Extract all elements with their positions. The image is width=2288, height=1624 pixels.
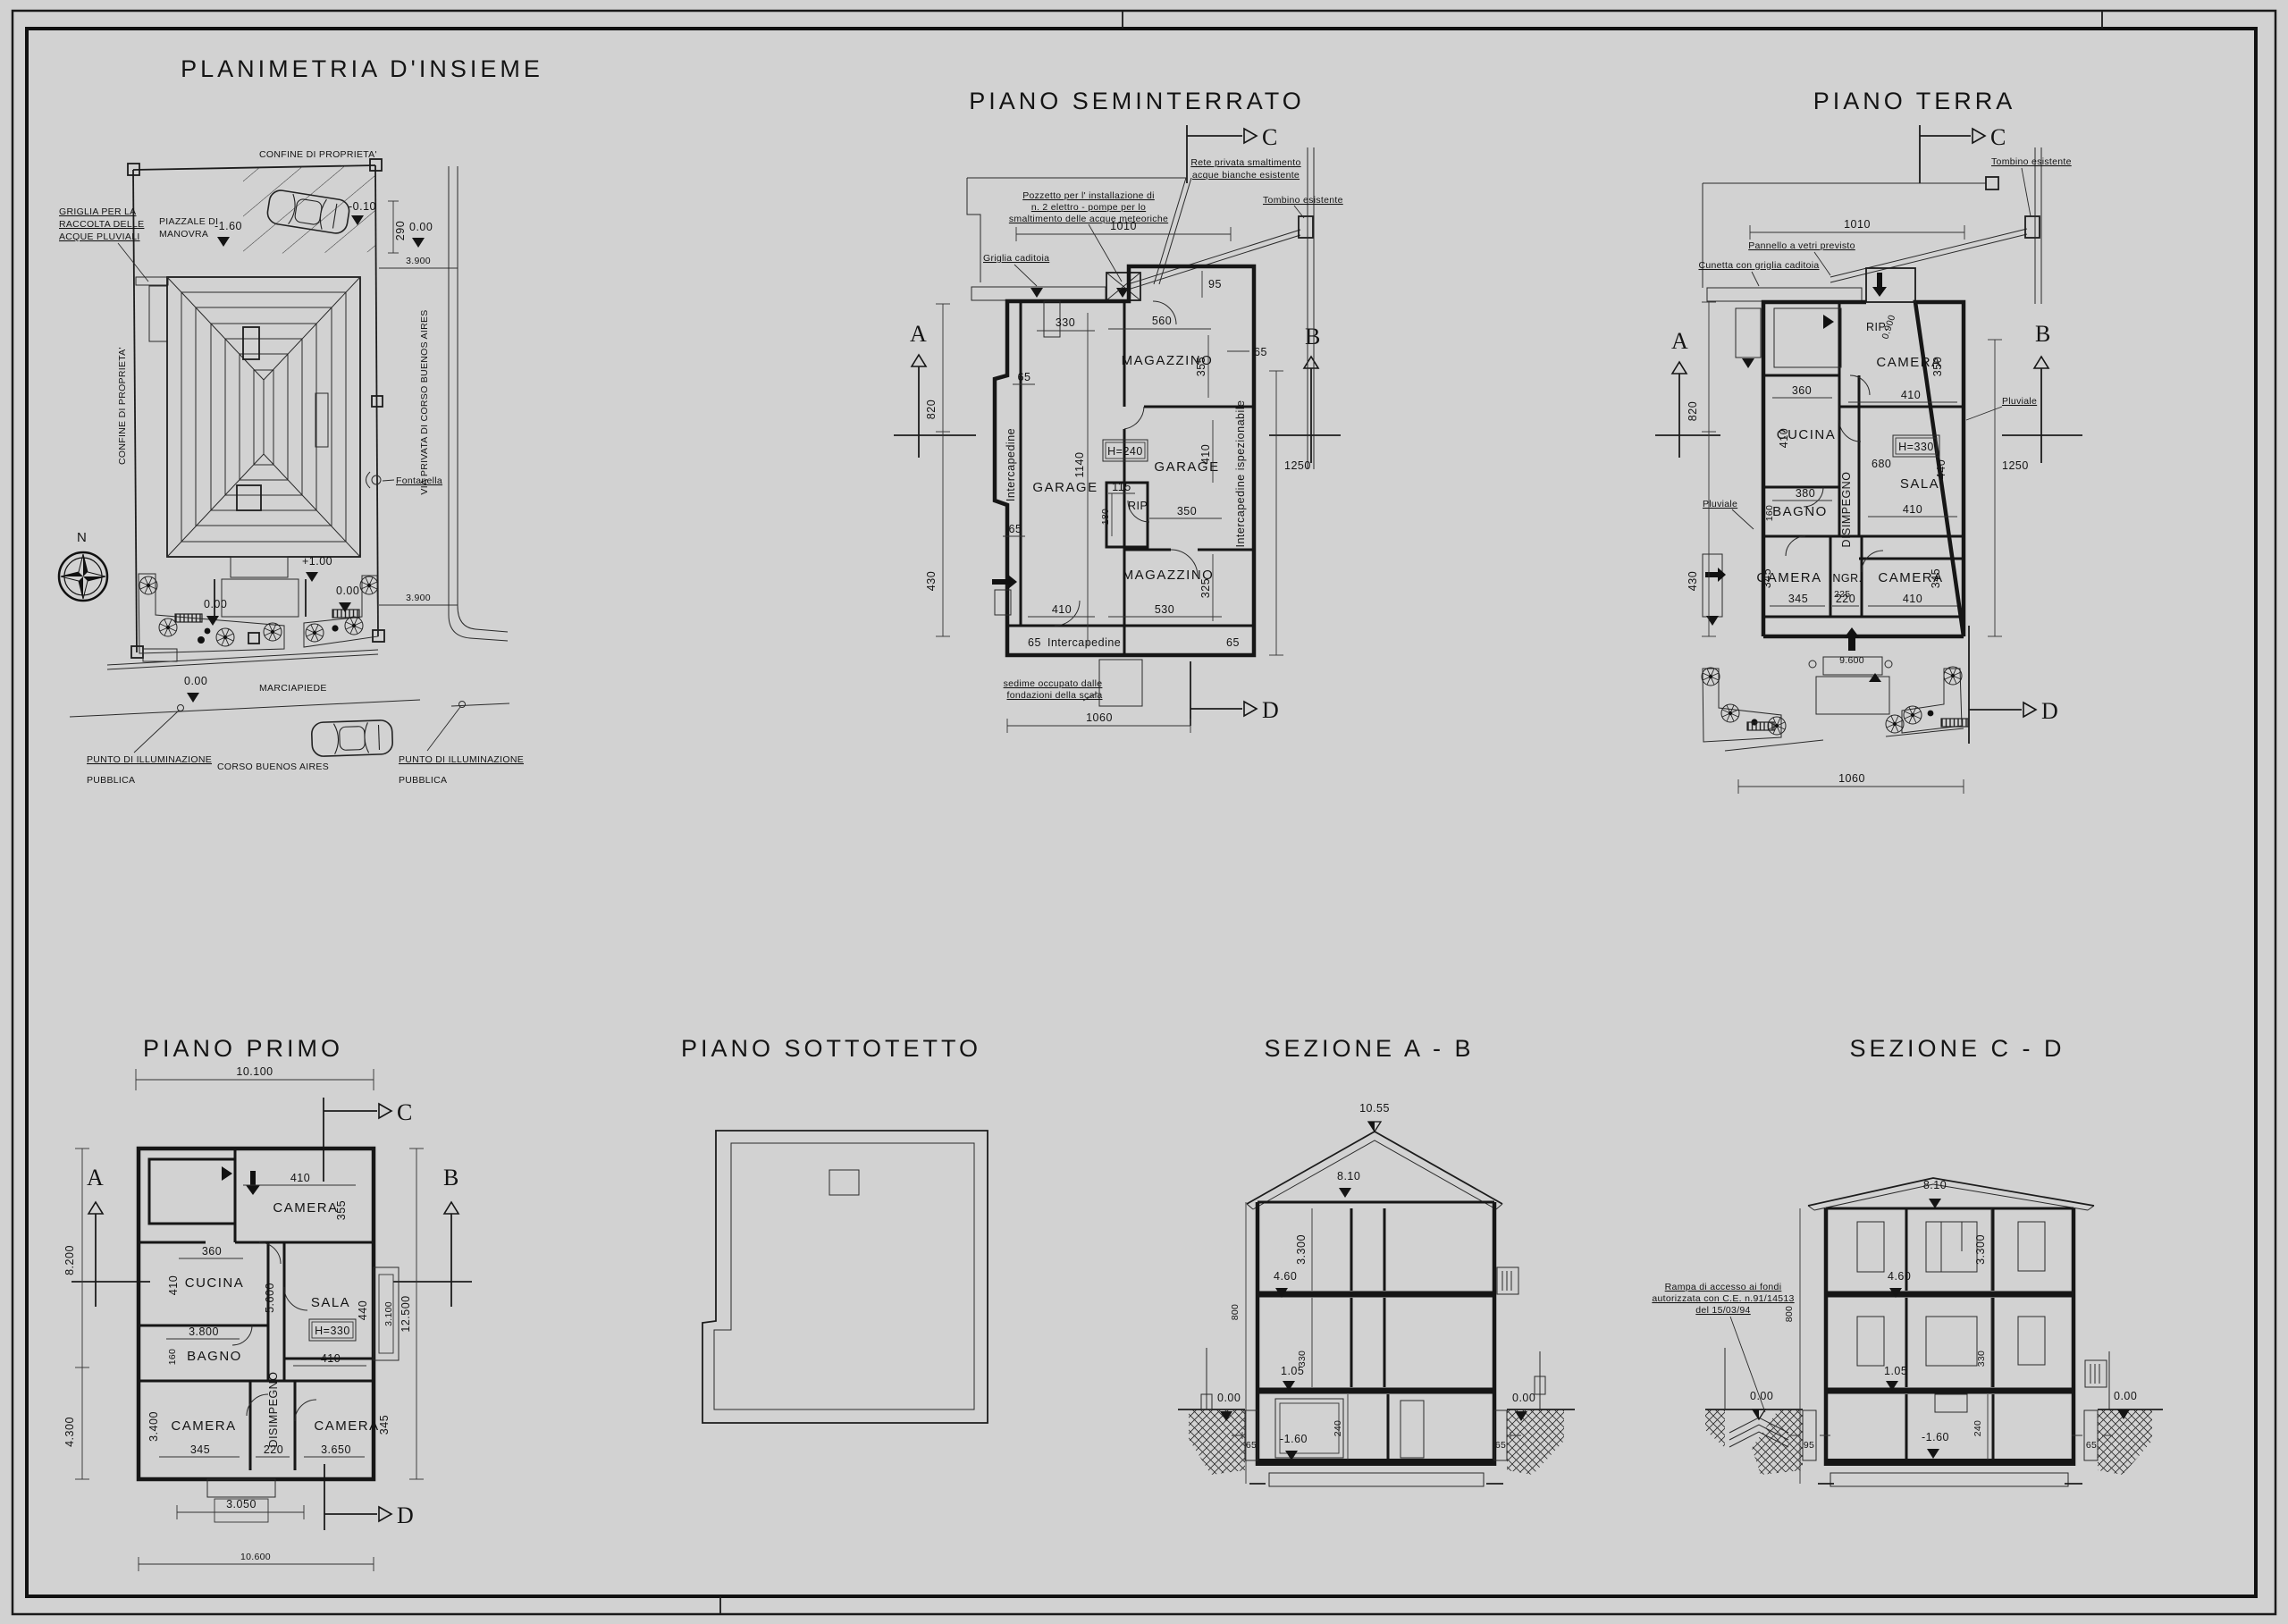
- ground-gardens: [1702, 657, 1968, 751]
- svg-text:410: 410: [1903, 503, 1922, 516]
- ground-title: PIANO TERRA: [1813, 88, 2016, 114]
- pluviale-left: Pluviale: [1703, 499, 1737, 509]
- svg-text:D: D: [1262, 697, 1279, 723]
- svg-text:1140: 1140: [1073, 452, 1086, 478]
- cd-level-810: 8.10: [1923, 1179, 1947, 1191]
- cunetta-note: Cunetta con griglia caditoia: [1698, 260, 1819, 271]
- fontanella-label: Fontanella: [396, 475, 442, 486]
- pozzetto-note-1: Pozzetto per l' installazione di: [1022, 190, 1155, 201]
- svg-text:GRIGLIA PER LA: GRIGLIA PER LA: [59, 206, 136, 217]
- svg-text:H=330: H=330: [315, 1325, 350, 1337]
- sidewalk-street: [70, 650, 509, 757]
- intercapedine-left: Intercapedine: [1005, 428, 1017, 501]
- first-room-bagno: BAGNO: [187, 1349, 242, 1364]
- ground-ext-stair-left: [1703, 308, 1761, 626]
- svg-text:C: C: [1990, 124, 2006, 150]
- ground-court: [1703, 147, 2041, 304]
- svg-text:430: 430: [1687, 571, 1699, 591]
- svg-text:65: 65: [1009, 523, 1022, 535]
- via-privata-label: VIA PRIVATA DI CORSO BUENOS AIRES: [419, 309, 430, 494]
- svg-text:C: C: [397, 1099, 412, 1125]
- svg-text:95: 95: [1208, 278, 1222, 290]
- level-zero-tr: 0.00: [409, 221, 433, 233]
- sedime-note: sedime occupato dalle fondazioni della s…: [1004, 660, 1142, 706]
- svg-text:10.100: 10.100: [236, 1065, 273, 1078]
- svg-text:65: 65: [1246, 1440, 1257, 1451]
- intercapedine-bottom-65: 65: [1028, 636, 1041, 649]
- svg-text:115: 115: [1112, 481, 1131, 493]
- svg-text:680: 680: [1872, 458, 1891, 470]
- svg-text:350: 350: [1931, 357, 1944, 376]
- svg-text:H=240: H=240: [1107, 445, 1143, 458]
- svg-text:C: C: [1262, 124, 1277, 150]
- svg-text:240: 240: [1973, 1420, 1983, 1436]
- panel-ground-floor: PIANO TERRA C B A D Tombino esistente 10…: [1655, 88, 2082, 794]
- ground-dim-0900: 0.900: [1880, 314, 1897, 341]
- svg-text:800: 800: [1230, 1304, 1241, 1320]
- attic-outline: [702, 1131, 988, 1423]
- ground-room-sala: SALA: [1900, 476, 1939, 492]
- svg-text:12.500: 12.500: [400, 1295, 412, 1332]
- pluviale-right: Pluviale: [2002, 396, 2037, 407]
- rete-note-2: acque bianche esistente: [1192, 170, 1300, 181]
- rete-note-1: Rete privata smaltimento: [1190, 157, 1300, 168]
- punto-ill-left-1: PUNTO DI ILLUMINAZIONE: [87, 754, 212, 765]
- svg-text:355: 355: [335, 1200, 348, 1220]
- tombino-note: Tombino esistente: [1263, 195, 1343, 206]
- svg-text:410: 410: [1903, 593, 1922, 605]
- svg-text:440: 440: [1935, 459, 1947, 479]
- svg-text:10.600: 10.600: [240, 1552, 271, 1562]
- svg-text:220: 220: [264, 1443, 283, 1456]
- ab-level-1055: 10.55: [1359, 1102, 1390, 1115]
- svg-text:180: 180: [1100, 509, 1111, 525]
- svg-text:A: A: [87, 1165, 104, 1191]
- svg-text:410: 410: [290, 1172, 310, 1184]
- svg-text:fondazioni della scala: fondazioni della scala: [1006, 690, 1102, 701]
- svg-text:240: 240: [1333, 1420, 1343, 1436]
- level-marker: [187, 693, 199, 703]
- svg-text:325: 325: [1199, 578, 1212, 598]
- svg-text:430: 430: [925, 571, 938, 591]
- svg-text:3.900: 3.900: [406, 593, 431, 603]
- punto-ill-right-1: PUNTO DI ILLUMINAZIONE: [399, 754, 524, 765]
- svg-text:3.400: 3.400: [147, 1411, 160, 1442]
- level-marker: [1753, 1409, 1765, 1419]
- svg-text:B: B: [2035, 321, 2050, 347]
- dim-3900-top: 3.900: [379, 256, 458, 268]
- pozzetto-note-2: n. 2 elettro - pompe per lo: [1031, 202, 1146, 213]
- level-zero-gl: 0.00: [204, 598, 227, 610]
- svg-text:360: 360: [202, 1245, 222, 1258]
- svg-text:0.00: 0.00: [1750, 1390, 1773, 1402]
- compass-north: [59, 552, 107, 601]
- svg-text:410: 410: [1052, 603, 1072, 616]
- panel-section-ab: SEZIONE A - B 10.55 8.10: [1178, 1035, 1575, 1486]
- svg-text:1250: 1250: [2002, 459, 2029, 472]
- piazzale-label-2: MANOVRA: [159, 229, 208, 240]
- svg-text:B: B: [443, 1165, 458, 1191]
- room-garage-left: GARAGE: [1032, 480, 1098, 495]
- first-room-camera1: CAMERA: [273, 1200, 338, 1216]
- svg-text:350: 350: [1177, 505, 1197, 517]
- svg-text:290: 290: [394, 221, 407, 240]
- svg-text:65: 65: [1018, 371, 1031, 383]
- svg-text:5.600: 5.600: [264, 1283, 276, 1313]
- svg-text:410: 410: [321, 1352, 341, 1365]
- blueprint-svg: PLANIMETRIA D'INSIEME CONFINE DI PROPRIE…: [0, 0, 2288, 1624]
- svg-text:65: 65: [1226, 636, 1240, 649]
- svg-text:autorizzata con C.E. n.91/1451: autorizzata con C.E. n.91/14513: [1652, 1293, 1794, 1304]
- svg-text:4.60: 4.60: [1888, 1270, 1911, 1283]
- sectionAB-title: SEZIONE A - B: [1264, 1035, 1474, 1062]
- ground-room-bagno: BAGNO: [1772, 504, 1828, 519]
- svg-text:220: 220: [1836, 593, 1855, 605]
- svg-text:del 15/03/94: del 15/03/94: [1695, 1305, 1750, 1316]
- svg-text:330: 330: [1056, 316, 1075, 329]
- corso-label: CORSO BUENOS AIRES: [217, 762, 329, 772]
- svg-text:ACQUE PLUVIALI: ACQUE PLUVIALI: [59, 231, 140, 242]
- svg-text:3.050: 3.050: [226, 1498, 257, 1510]
- svg-text:345: 345: [1761, 568, 1773, 588]
- svg-text:Rampa di accesso ai fondi: Rampa di accesso ai fondi: [1665, 1282, 1782, 1292]
- drawing-sheet: PLANIMETRIA D'INSIEME CONFINE DI PROPRIE…: [0, 0, 2288, 1624]
- site-ext-stairs: [149, 286, 167, 341]
- level-m010: -0.10: [349, 200, 376, 213]
- ground-h330: H=330: [1893, 435, 1939, 457]
- panel-basement: PIANO SEMINTERRATO C B A D Rete privata …: [894, 88, 1343, 733]
- level-m160: -1.60: [214, 220, 242, 232]
- svg-text:0.00: 0.00: [2114, 1390, 2137, 1402]
- first-room-disimpegno: DISIMPEGNO: [267, 1372, 280, 1448]
- svg-text:RACCOLTA DELLE: RACCOLTA DELLE: [59, 219, 144, 230]
- sectionCD-title: SEZIONE C - D: [1849, 1035, 2065, 1062]
- panel-attic: PIANO SOTTOTETTO: [681, 1035, 988, 1423]
- building-roof: [167, 277, 360, 557]
- svg-text:0.00: 0.00: [1217, 1392, 1241, 1404]
- ab-dims: 3.300 4.60 800 330 1.05 0.00 0.00 240 -1…: [1217, 1202, 1535, 1484]
- cd-dims: 3.300 4.60 800 330 1.05 0.00 0.00 240 -1…: [1750, 1208, 2137, 1484]
- level-marker: [306, 572, 318, 582]
- svg-text:D: D: [397, 1502, 414, 1528]
- ground-room-disimpegno: DISIMPEGNO: [1840, 472, 1853, 548]
- svg-text:1060: 1060: [1838, 772, 1865, 785]
- svg-text:4.60: 4.60: [1274, 1270, 1297, 1283]
- level-marker: [412, 238, 425, 248]
- svg-text:8.200: 8.200: [63, 1245, 76, 1275]
- cd-structure: [1803, 1208, 2107, 1466]
- confine-top-label: CONFINE DI PROPRIETA': [259, 149, 377, 160]
- level-zero-gr: 0.00: [336, 585, 359, 597]
- svg-text:800: 800: [1784, 1306, 1795, 1322]
- pannello-note: Pannello a vetri previsto: [1748, 240, 1855, 251]
- panel-first-floor: PIANO PRIMO 10.100 C A B D: [63, 1035, 472, 1571]
- first-h330: H=330: [309, 1319, 356, 1341]
- level-p100: +1.00: [302, 555, 332, 568]
- level-marker: [1929, 1199, 1941, 1208]
- ab-level-810: 8.10: [1337, 1170, 1360, 1182]
- cd-roof: [1808, 1178, 2094, 1210]
- dim-3900-bottom: 3.900: [379, 593, 458, 605]
- svg-text:360: 360: [1792, 384, 1812, 397]
- svg-text:345: 345: [190, 1443, 210, 1456]
- svg-text:530: 530: [1155, 603, 1174, 616]
- panel-section-cd: SEZIONE C - D 8.10: [1652, 1035, 2163, 1486]
- first-title: PIANO PRIMO: [143, 1035, 343, 1062]
- svg-text:A: A: [1671, 328, 1688, 354]
- level-marker: [217, 237, 230, 247]
- svg-text:1.05: 1.05: [1884, 1365, 1907, 1377]
- svg-text:820: 820: [925, 400, 938, 419]
- svg-text:-1.60: -1.60: [1280, 1433, 1308, 1445]
- svg-text:345: 345: [1930, 568, 1942, 588]
- basement-title: PIANO SEMINTERRATO: [969, 88, 1305, 114]
- first-room-camera2: CAMERA: [171, 1418, 236, 1434]
- level-marker: [1927, 1449, 1939, 1459]
- svg-text:1060: 1060: [1086, 711, 1113, 724]
- svg-text:345: 345: [1788, 593, 1808, 605]
- svg-text:0.00: 0.00: [1512, 1392, 1535, 1404]
- north-label: N: [77, 530, 88, 545]
- svg-text:D: D: [2041, 698, 2058, 724]
- svg-text:3.100: 3.100: [383, 1301, 394, 1326]
- svg-text:410: 410: [167, 1275, 180, 1295]
- svg-text:sedime occupato dalle: sedime occupato dalle: [1004, 678, 1103, 689]
- svg-text:3.800: 3.800: [189, 1325, 219, 1338]
- entrance-steps: [214, 557, 306, 618]
- svg-text:-1.60: -1.60: [1922, 1431, 1949, 1443]
- site-title: PLANIMETRIA D'INSIEME: [181, 55, 543, 82]
- attic-title: PIANO SOTTOTETTO: [681, 1035, 981, 1062]
- svg-text:160: 160: [1764, 505, 1775, 521]
- piazzale-label-1: PIAZZALE DI: [159, 216, 218, 227]
- street-right: [366, 166, 509, 641]
- svg-text:65: 65: [1254, 346, 1267, 358]
- intercapedine-isp: Intercapedine ispezionabile: [1234, 400, 1247, 548]
- ab-roof: [1247, 1132, 1502, 1209]
- punto-ill-right-2: PUBBLICA: [399, 775, 447, 786]
- svg-text:410: 410: [1199, 444, 1212, 464]
- svg-text:3.300: 3.300: [1295, 1234, 1308, 1265]
- level-zero-walk: 0.00: [184, 675, 207, 687]
- svg-text:95: 95: [1804, 1440, 1814, 1451]
- svg-text:410: 410: [1778, 428, 1790, 448]
- ground-dims: 350 410 360 410 680 440 410 380 160 345 …: [1687, 302, 2029, 794]
- svg-text:345: 345: [378, 1415, 391, 1435]
- svg-text:330: 330: [1976, 1351, 1987, 1367]
- confine-left-label: CONFINE DI PROPRIETA': [117, 347, 128, 465]
- svg-text:1.05: 1.05: [1281, 1365, 1304, 1377]
- room-rip: RIP.: [1128, 500, 1150, 512]
- svg-text:560: 560: [1152, 315, 1172, 327]
- level-marker: [1339, 1188, 1351, 1198]
- svg-text:65: 65: [1495, 1440, 1506, 1451]
- punto-ill-left-2: PUBBLICA: [87, 775, 135, 786]
- pozzetto-note-3: smaltimento delle acque meteoriche: [1009, 214, 1168, 224]
- svg-text:3.900: 3.900: [406, 256, 431, 266]
- svg-text:1010: 1010: [1844, 218, 1871, 231]
- griglia-caditoia-note: Griglia caditoia: [983, 253, 1049, 264]
- svg-text:1250: 1250: [1284, 459, 1311, 472]
- svg-text:A: A: [910, 321, 927, 347]
- svg-text:4.300: 4.300: [63, 1417, 76, 1447]
- griglia-note: GRIGLIA PER LA RACCOLTA DELLE ACQUE PLUV…: [59, 206, 148, 282]
- svg-text:H=330: H=330: [1898, 441, 1934, 453]
- level-marker: [206, 616, 219, 626]
- ground-section-marks: C B A D: [1655, 124, 2082, 744]
- marciapiede-label: MARCIAPIEDE: [259, 683, 327, 694]
- dim-290: 290: [388, 201, 407, 253]
- ground-dim-1010: 1010: [1750, 218, 1964, 240]
- first-dim-10100: 10.100: [136, 1065, 374, 1090]
- ground-tombino-note: Tombino esistente: [1991, 156, 2072, 167]
- first-room-sala: SALA: [311, 1295, 350, 1310]
- svg-text:65: 65: [2086, 1440, 2097, 1451]
- intercapedine-bottom: Intercapedine: [1047, 636, 1121, 649]
- ground-room-ingr: INGR.: [1829, 572, 1862, 585]
- panel-site-plan: PLANIMETRIA D'INSIEME CONFINE DI PROPRIE…: [59, 55, 543, 786]
- svg-text:355: 355: [1195, 357, 1207, 376]
- grille-strip: [136, 277, 168, 285]
- first-room-camera3: CAMERA: [314, 1418, 379, 1434]
- svg-text:820: 820: [1687, 401, 1699, 421]
- svg-text:380: 380: [1796, 487, 1815, 500]
- svg-text:1010: 1010: [1110, 220, 1137, 232]
- first-room-cucina: CUCINA: [185, 1275, 245, 1291]
- svg-text:410: 410: [1901, 389, 1921, 401]
- svg-text:160: 160: [167, 1349, 178, 1365]
- ab-structure: [1245, 1202, 1518, 1466]
- level-marker: [1368, 1122, 1381, 1132]
- svg-text:3.300: 3.300: [1974, 1234, 1987, 1265]
- svg-text:3.650: 3.650: [321, 1443, 351, 1456]
- svg-text:440: 440: [357, 1300, 369, 1320]
